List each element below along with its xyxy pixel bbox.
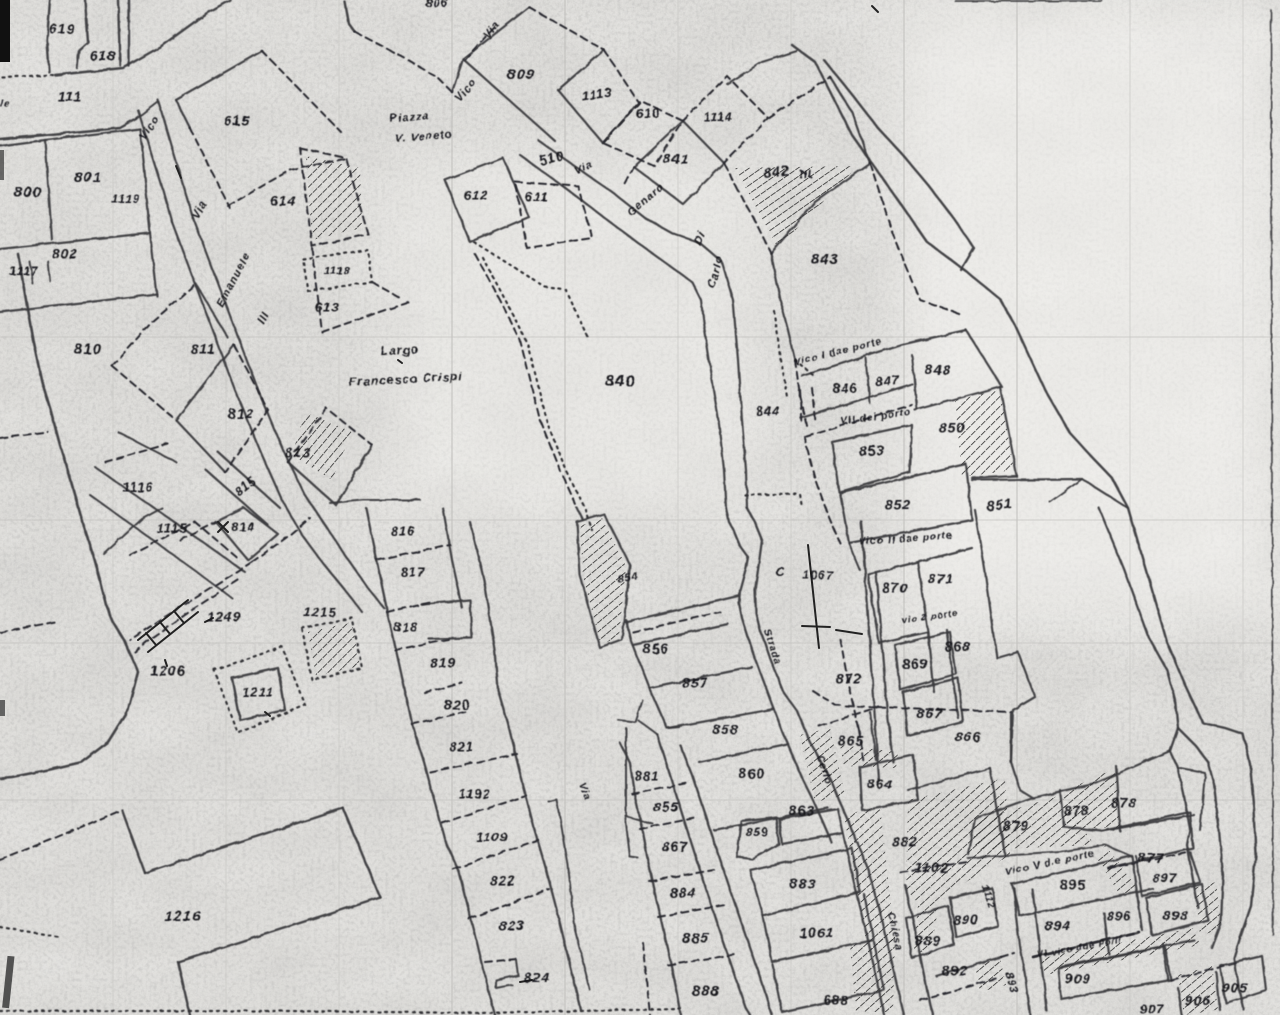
svg-text:841: 841: [663, 151, 689, 167]
svg-text:619: 619: [49, 21, 75, 37]
svg-text:859: 859: [745, 825, 768, 839]
svg-text:615: 615: [224, 113, 250, 129]
svg-text:821: 821: [450, 739, 475, 754]
svg-text:1215: 1215: [304, 604, 337, 619]
svg-text:856: 856: [643, 641, 669, 657]
svg-text:889: 889: [915, 933, 941, 949]
svg-text:878: 878: [1111, 795, 1137, 811]
svg-text:867: 867: [662, 839, 689, 855]
svg-text:611: 611: [525, 189, 549, 204]
svg-text:1211: 1211: [242, 684, 274, 699]
svg-text:1114: 1114: [704, 110, 733, 124]
svg-text:1118: 1118: [324, 265, 351, 277]
svg-text:847: 847: [875, 372, 901, 390]
svg-text:817: 817: [401, 564, 426, 579]
svg-text:1192: 1192: [459, 786, 491, 801]
svg-text:613: 613: [315, 299, 340, 314]
svg-text:1117: 1117: [10, 264, 39, 278]
svg-text:853: 853: [859, 443, 885, 459]
svg-text:872: 872: [836, 671, 862, 687]
svg-text:858: 858: [713, 722, 739, 738]
svg-text:892: 892: [942, 963, 968, 979]
svg-text:863: 863: [789, 803, 815, 819]
svg-text:612: 612: [464, 187, 489, 202]
svg-text:819: 819: [430, 655, 456, 671]
svg-text:905: 905: [1222, 980, 1248, 996]
svg-text:869: 869: [902, 656, 928, 672]
svg-text:864: 864: [868, 776, 893, 791]
svg-text:907: 907: [1140, 1001, 1165, 1015]
svg-text:1119: 1119: [112, 192, 141, 206]
svg-text:890: 890: [953, 912, 979, 928]
svg-text:896: 896: [1107, 908, 1132, 923]
svg-text:840: 840: [605, 373, 635, 390]
svg-text:610: 610: [636, 105, 661, 120]
svg-text:111: 111: [58, 89, 82, 105]
svg-text:870: 870: [882, 580, 908, 596]
svg-text:811: 811: [190, 341, 215, 357]
svg-text:881: 881: [635, 768, 660, 783]
svg-text:878: 878: [1065, 803, 1090, 818]
svg-text:le: le: [0, 99, 10, 110]
svg-text:614: 614: [270, 193, 296, 209]
svg-text:1249: 1249: [206, 609, 241, 625]
svg-text:867: 867: [917, 706, 944, 722]
svg-text:III: III: [799, 168, 812, 181]
svg-text:818: 818: [394, 619, 419, 634]
svg-text:871: 871: [928, 571, 954, 587]
svg-text:848: 848: [925, 362, 951, 378]
svg-text:618: 618: [90, 48, 116, 64]
svg-text:877: 877: [1138, 850, 1165, 866]
svg-text:851: 851: [986, 495, 1014, 514]
svg-text:897: 897: [1153, 870, 1178, 885]
svg-text:909: 909: [1065, 971, 1091, 987]
svg-text:842: 842: [763, 162, 791, 181]
svg-text:822: 822: [490, 873, 516, 889]
svg-text:852: 852: [885, 497, 911, 513]
svg-text:802: 802: [52, 246, 78, 262]
svg-text:824: 824: [524, 970, 550, 986]
svg-text:814: 814: [231, 520, 254, 534]
svg-text:1102: 1102: [915, 860, 949, 876]
svg-text:1061: 1061: [799, 925, 834, 941]
svg-text:895: 895: [1060, 877, 1086, 893]
svg-text:898: 898: [1163, 908, 1189, 924]
svg-text:843: 843: [811, 251, 839, 268]
svg-text:860: 860: [739, 766, 765, 782]
svg-text:820: 820: [444, 697, 470, 713]
svg-text:806: 806: [425, 0, 448, 10]
svg-text:846: 846: [833, 380, 858, 395]
svg-text:809: 809: [507, 66, 535, 83]
svg-text:868: 868: [945, 639, 971, 655]
svg-text:855: 855: [653, 799, 679, 815]
svg-text:850: 850: [939, 420, 965, 436]
svg-text:888: 888: [692, 983, 720, 1000]
svg-text:1116: 1116: [123, 479, 154, 494]
svg-text:883: 883: [790, 876, 816, 892]
svg-text:894: 894: [1045, 918, 1071, 934]
svg-text:1067: 1067: [803, 568, 834, 582]
svg-text:810: 810: [74, 341, 102, 358]
svg-text:816: 816: [391, 523, 416, 538]
svg-text:Largo: Largo: [380, 342, 419, 358]
svg-text:1115: 1115: [157, 520, 188, 535]
svg-text:812: 812: [228, 406, 254, 422]
svg-text:801: 801: [74, 169, 102, 186]
svg-text:857: 857: [682, 675, 709, 691]
svg-text:1216: 1216: [164, 908, 201, 925]
svg-text:844: 844: [756, 403, 781, 418]
svg-text:823: 823: [499, 918, 525, 934]
svg-text:865: 865: [838, 733, 864, 749]
svg-text:688: 688: [824, 992, 849, 1007]
svg-text:866: 866: [955, 729, 981, 745]
svg-text:813: 813: [285, 445, 311, 461]
svg-text:885: 885: [682, 930, 710, 947]
svg-text:906: 906: [1185, 993, 1211, 1009]
svg-text:879: 879: [1003, 818, 1029, 834]
svg-text:800: 800: [14, 184, 42, 201]
svg-text:882: 882: [892, 834, 918, 850]
svg-text:884: 884: [670, 885, 696, 901]
svg-text:C: C: [775, 563, 785, 578]
svg-text:1206: 1206: [150, 663, 185, 679]
svg-text:1109: 1109: [476, 829, 508, 844]
